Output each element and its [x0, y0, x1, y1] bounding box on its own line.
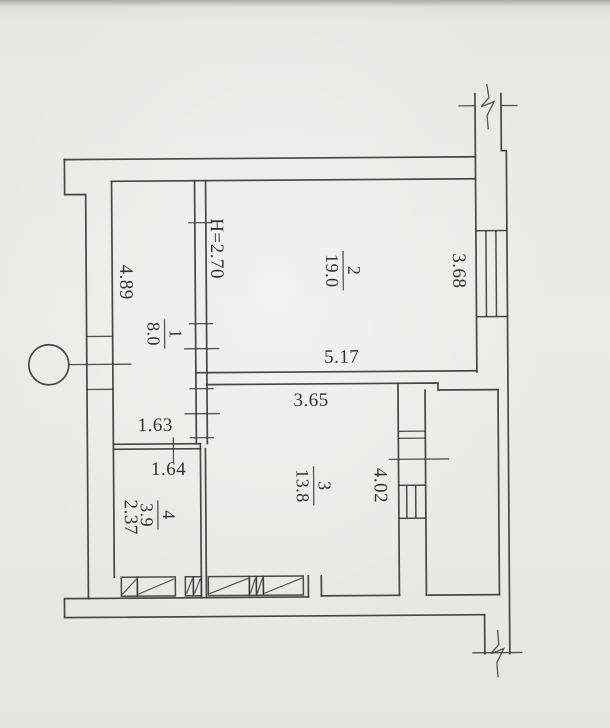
outer-walls	[61, 157, 499, 618]
dim-right-window: 3.68	[448, 253, 469, 288]
room-1-label: 1 8.0	[144, 320, 186, 348]
room-4-label: 4 3.9	[137, 501, 179, 529]
dim-room2-width: 5.17	[324, 347, 359, 368]
dim-room4-width: 1.64	[151, 459, 186, 480]
floor-plan-drawing: 4.89 1 8.0 H=2.70 2 19.0 3.68 5.17 3.65	[0, 0, 610, 728]
riser-circle	[29, 344, 131, 385]
wall-break-mark-bottom	[473, 630, 522, 676]
dim-corridor-length: 4.89	[115, 265, 136, 300]
party-wall-right	[475, 94, 510, 654]
room-1-number: 1	[166, 329, 186, 339]
dim-room3-width: 3.65	[293, 390, 328, 411]
dim-loggia-depth: 4.02	[370, 468, 391, 503]
room-2-label: 2 19.0	[322, 252, 364, 290]
room-2-number: 2	[344, 266, 364, 276]
room-3-label: 3 13.8	[293, 467, 335, 505]
room-1-area: 8.0	[144, 322, 164, 346]
labels: 4.89 1 8.0 H=2.70 2 19.0 3.68 5.17 3.65	[115, 216, 471, 534]
scanned-floor-plan-page: 4.89 1 8.0 H=2.70 2 19.0 3.68 5.17 3.65	[0, 0, 610, 728]
interior-walls	[112, 179, 500, 599]
window-right	[476, 231, 508, 317]
bottom-glazing-strip	[121, 576, 303, 596]
room-2-area: 19.0	[322, 254, 342, 288]
window-loggia-wall	[399, 485, 426, 518]
ceiling-height-label: H=2.70	[206, 218, 227, 279]
room-3-number: 3	[315, 481, 335, 491]
room-4-number: 4	[159, 510, 179, 520]
room-4-area: 3.9	[137, 503, 157, 527]
dim-corridor-width: 1.63	[138, 415, 173, 436]
wall-break-mark-top	[459, 84, 517, 128]
room-3-area: 13.8	[293, 469, 313, 503]
